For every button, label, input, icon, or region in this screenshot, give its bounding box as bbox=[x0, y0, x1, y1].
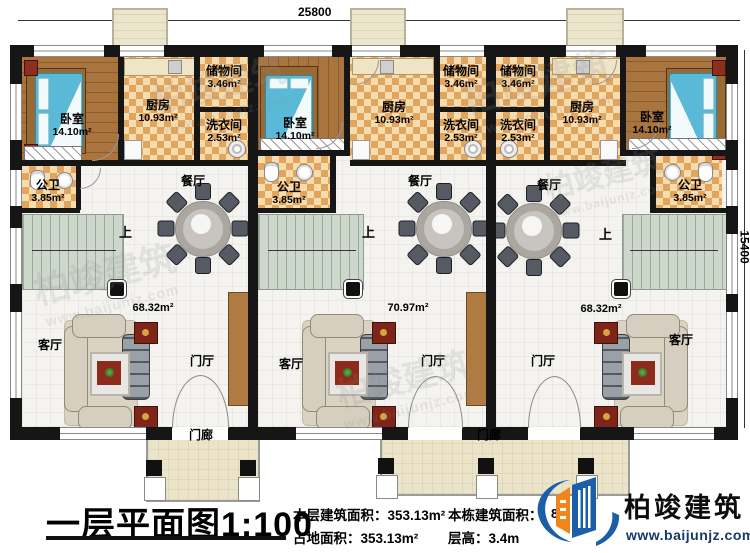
porch-pillar bbox=[240, 460, 256, 476]
room-label-porch-left: 门廊 bbox=[189, 428, 213, 442]
brand-logo-icon bbox=[534, 472, 622, 552]
stat-floor-area: 本层建筑面积：353.13m² bbox=[293, 504, 445, 524]
window bbox=[440, 45, 484, 57]
window bbox=[10, 170, 22, 206]
room-label-dining-left: 餐厅 bbox=[181, 174, 205, 188]
stair-direction-line bbox=[630, 250, 718, 251]
stove bbox=[576, 60, 590, 74]
column-marker bbox=[344, 280, 362, 298]
dining-table-set bbox=[416, 201, 470, 255]
window bbox=[566, 45, 616, 57]
room-label-bath-right: 公卫3.85m² bbox=[673, 178, 706, 205]
floor-plan-page: 25800 15400 bbox=[0, 0, 750, 553]
wall bbox=[330, 156, 336, 213]
bed bbox=[26, 68, 86, 154]
staircase-right bbox=[622, 214, 728, 290]
brand-url: www.baijunjz.com bbox=[626, 527, 750, 543]
window bbox=[34, 45, 104, 57]
room-label-storage-middle: 储物间3.46m² bbox=[443, 64, 479, 91]
room-label-laundry-middle: 洗衣间2.53m² bbox=[443, 118, 479, 145]
window bbox=[726, 234, 738, 294]
fridge bbox=[124, 140, 142, 160]
unit-area-right: 68.32m² bbox=[581, 303, 622, 315]
room-label-living-middle: 客厅 bbox=[279, 357, 303, 371]
window bbox=[634, 427, 714, 440]
stair-up-label: 上 bbox=[362, 222, 375, 241]
stat-building-area: 本栋建筑面积： bbox=[448, 504, 543, 524]
room-label-foyer-left: 门厅 bbox=[190, 354, 214, 368]
wall bbox=[194, 107, 250, 112]
nightstand bbox=[24, 60, 38, 76]
dining-table-set bbox=[506, 203, 560, 257]
wall-party bbox=[248, 57, 258, 427]
room-label-kitchen-middle: 厨房10.93m² bbox=[374, 100, 413, 127]
window bbox=[726, 170, 738, 206]
wall bbox=[350, 160, 486, 166]
kitchen-counter bbox=[124, 58, 196, 76]
room-label-living-right: 客厅 bbox=[669, 333, 693, 347]
foyer-partition bbox=[466, 292, 488, 406]
column-marker bbox=[108, 280, 126, 298]
stove bbox=[380, 60, 394, 74]
porch-pillar bbox=[146, 460, 162, 476]
wall bbox=[620, 57, 626, 156]
room-label-kitchen-left: 厨房10.93m² bbox=[138, 98, 177, 125]
stair-up-label: 上 bbox=[599, 224, 612, 243]
window bbox=[10, 312, 22, 398]
unit-area-left: 68.32m² bbox=[133, 302, 174, 314]
wall bbox=[258, 208, 332, 213]
fridge bbox=[352, 140, 370, 160]
room-label-foyer-right: 门厅 bbox=[531, 354, 555, 368]
window bbox=[264, 45, 332, 57]
wall bbox=[118, 57, 124, 166]
fridge bbox=[600, 140, 618, 160]
dimension-height: 15400 bbox=[738, 230, 750, 263]
toilet bbox=[264, 162, 279, 182]
pillar-base bbox=[376, 475, 398, 499]
sink bbox=[296, 164, 313, 181]
nightstand bbox=[712, 60, 726, 76]
room-label-kitchen-right: 厨房10.93m² bbox=[562, 100, 601, 127]
wall bbox=[650, 208, 726, 213]
window bbox=[296, 427, 382, 440]
stair-direction-line bbox=[268, 250, 356, 251]
stat-land-area: 占地面积：353.13m² bbox=[293, 527, 418, 547]
stair-up-label: 上 bbox=[119, 222, 132, 241]
room-label-living-left: 客厅 bbox=[38, 338, 62, 352]
room-label-foyer-middle: 门厅 bbox=[421, 354, 445, 368]
room-label-bath-middle: 公卫3.85m² bbox=[272, 180, 305, 207]
foyer-partition bbox=[228, 292, 250, 406]
staircase-middle bbox=[258, 214, 364, 290]
title-underline bbox=[46, 536, 286, 540]
porch-pillar bbox=[378, 458, 394, 474]
wall bbox=[620, 150, 726, 156]
wall bbox=[22, 208, 80, 213]
window bbox=[646, 45, 716, 57]
stair-direction-line bbox=[32, 250, 116, 251]
room-label-laundry-left: 洗衣间2.53m² bbox=[206, 118, 242, 145]
brand-name: 柏竣建筑 bbox=[624, 486, 744, 525]
room-label-dining-middle: 餐厅 bbox=[408, 174, 432, 188]
room-label-storage-right: 储物间3.46m² bbox=[500, 64, 536, 91]
wall bbox=[496, 160, 626, 166]
pillar-base bbox=[476, 475, 498, 499]
room-label-porch-main: 门廊 bbox=[477, 428, 501, 442]
roof-projection bbox=[350, 8, 406, 49]
room-label-storage-left: 储物间3.46m² bbox=[206, 64, 242, 91]
window bbox=[10, 84, 22, 140]
room-label-bedroom-left: 卧室14.10m² bbox=[52, 112, 91, 139]
stove bbox=[168, 60, 182, 74]
wardrobe bbox=[24, 146, 82, 161]
window bbox=[10, 228, 22, 284]
room-label-dining-right: 餐厅 bbox=[537, 178, 561, 192]
wall bbox=[650, 156, 656, 213]
window bbox=[352, 45, 400, 57]
wall bbox=[22, 160, 248, 166]
dining-table-set bbox=[175, 201, 229, 255]
sofa-set bbox=[64, 314, 158, 426]
column-marker bbox=[612, 280, 630, 298]
sofa-set bbox=[302, 314, 396, 426]
window bbox=[726, 84, 738, 140]
window bbox=[120, 45, 164, 57]
roof-projection bbox=[566, 8, 624, 49]
roof-projection bbox=[112, 8, 168, 49]
window bbox=[726, 312, 738, 398]
stat-floor-height: 层高：3.4m bbox=[448, 527, 519, 547]
room-label-laundry-right: 洗衣间2.53m² bbox=[500, 118, 536, 145]
wall bbox=[344, 57, 350, 156]
room-label-bath-left: 公卫3.85m² bbox=[31, 178, 64, 205]
porch-pillar bbox=[478, 458, 494, 474]
unit-area-middle: 70.97m² bbox=[388, 302, 429, 314]
window bbox=[60, 427, 146, 440]
staircase-left bbox=[22, 214, 124, 290]
room-label-bedroom-middle: 卧室14.10m² bbox=[275, 116, 314, 143]
wall-party bbox=[486, 57, 496, 427]
wall bbox=[544, 57, 550, 166]
dimension-width: 25800 bbox=[298, 5, 331, 19]
entry-opening bbox=[528, 427, 580, 440]
wall bbox=[496, 107, 544, 112]
room-label-bedroom-right: 卧室14.10m² bbox=[632, 110, 671, 137]
wall bbox=[434, 107, 486, 112]
sofa-set bbox=[594, 314, 688, 426]
entry-opening bbox=[408, 427, 462, 440]
